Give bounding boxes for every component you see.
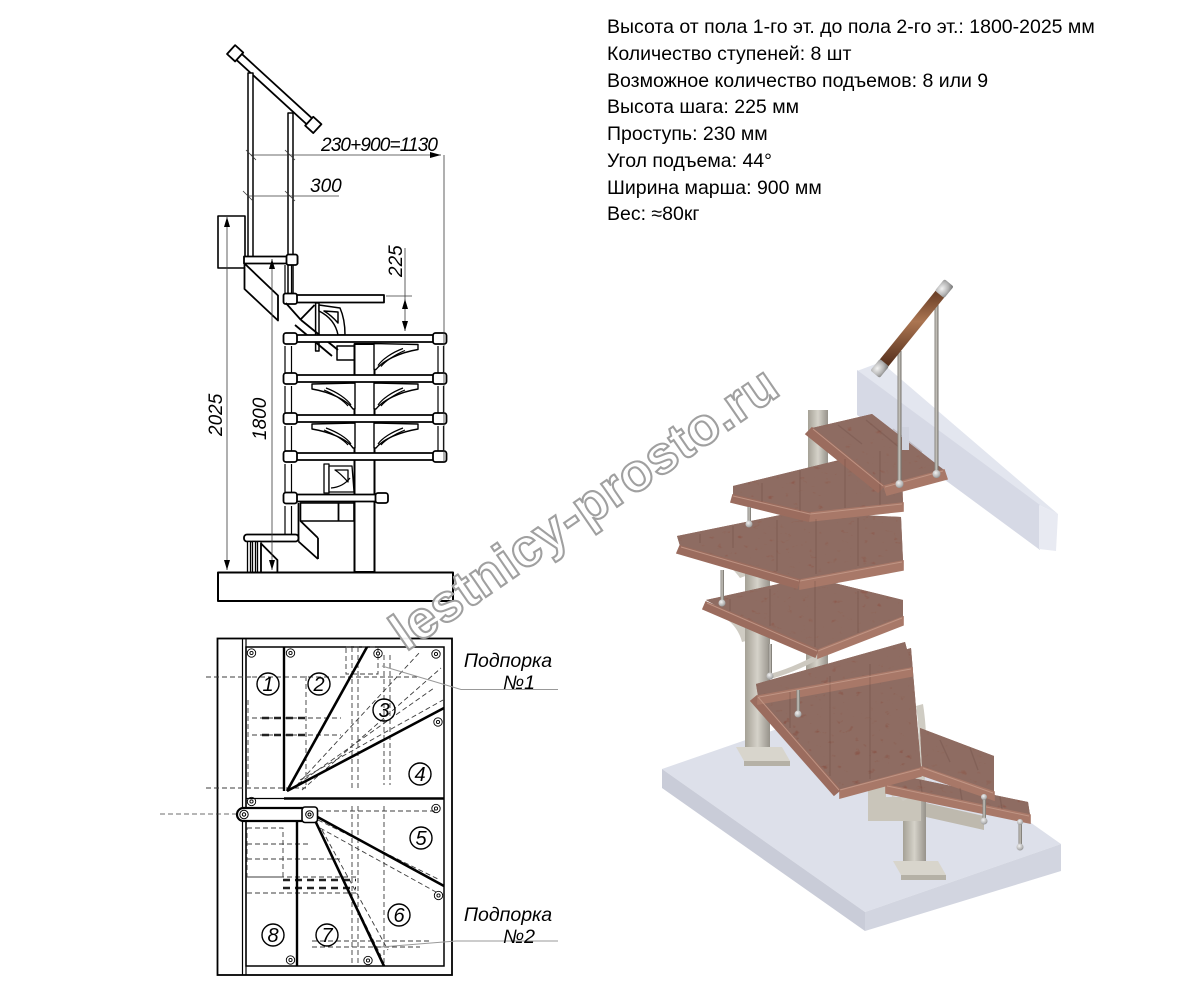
svg-text:Угол подъема: 44°: Угол подъема: 44° bbox=[607, 150, 772, 172]
svg-text:5: 5 bbox=[415, 828, 427, 850]
svg-text:1800: 1800 bbox=[250, 397, 271, 440]
svg-text:Вес: ≈80кг: Вес: ≈80кг bbox=[607, 203, 699, 225]
svg-text:Количество ступеней: 8 шт: Количество ступеней: 8 шт bbox=[607, 43, 851, 65]
svg-text:№1: №1 bbox=[503, 672, 535, 694]
svg-text:7: 7 bbox=[321, 925, 333, 947]
svg-text:Высота от пола 1-го эт. до пол: Высота от пола 1-го эт. до пола 2-го эт.… bbox=[607, 16, 1095, 38]
svg-text:Подпорка: Подпорка bbox=[464, 650, 552, 672]
svg-text:3: 3 bbox=[378, 700, 389, 722]
svg-text:8: 8 bbox=[267, 925, 278, 947]
svg-text:Высота шага: 225 мм: Высота шага: 225 мм bbox=[607, 96, 799, 118]
svg-text:Возможное количество подъемов:: Возможное количество подъемов: 8 или 9 bbox=[607, 70, 988, 92]
svg-text:Подпорка: Подпорка bbox=[464, 904, 552, 926]
svg-text:300: 300 bbox=[310, 176, 342, 197]
svg-text:230+900=1130: 230+900=1130 bbox=[320, 135, 438, 156]
svg-text:6: 6 bbox=[393, 905, 405, 927]
svg-text:225: 225 bbox=[386, 245, 407, 278]
svg-text:Проступь: 230 мм: Проступь: 230 мм bbox=[607, 123, 768, 145]
svg-text:2: 2 bbox=[312, 674, 324, 696]
svg-text:1: 1 bbox=[262, 674, 273, 696]
svg-text:4: 4 bbox=[414, 764, 425, 786]
svg-text:Ширина марша: 900 мм: Ширина марша: 900 мм bbox=[607, 177, 822, 199]
svg-text:2025: 2025 bbox=[206, 393, 227, 437]
svg-text:№2: №2 bbox=[503, 926, 535, 948]
